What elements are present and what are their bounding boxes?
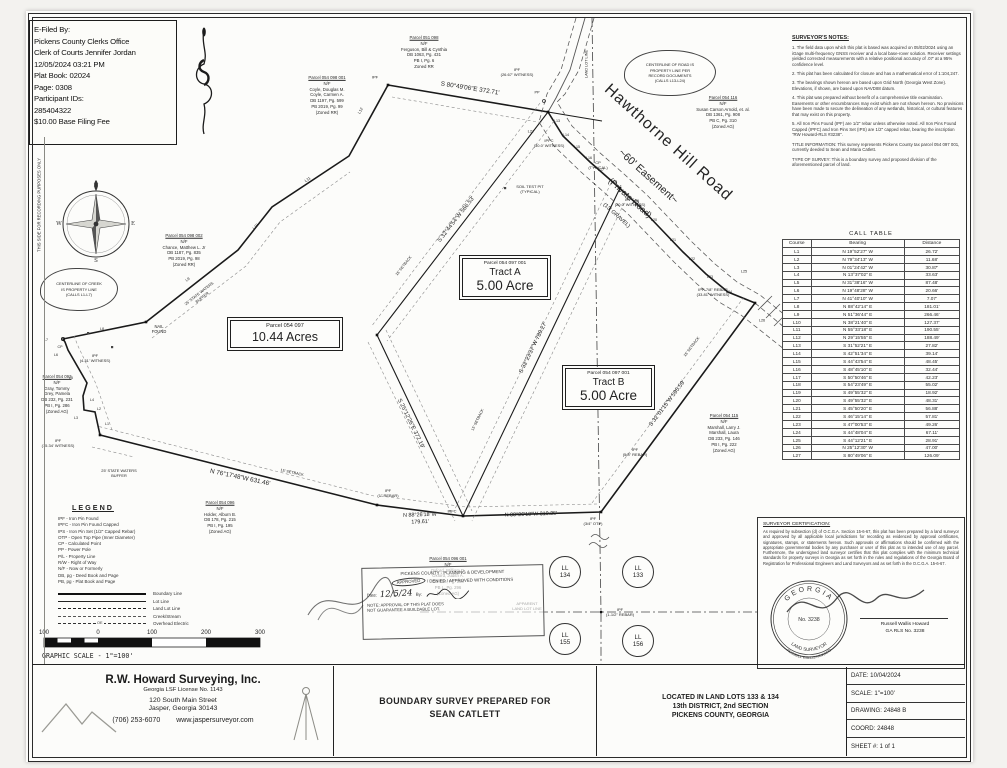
recording-margin-line	[44, 137, 45, 665]
prepared-for-block: BOUNDARY SURVEY PREPARED FOR SEAN CATLET…	[336, 666, 594, 719]
tripod-logo-icon	[286, 684, 326, 746]
location-block: LOCATED IN LAND LOTS 133 & 134 13th DIST…	[596, 666, 845, 719]
location-line-2: 13th DISTRICT, 2nd SECTION	[596, 703, 845, 710]
company-website: www.jaspersurveyor.com	[176, 717, 253, 724]
info-scale: SCALE: 1"=100'	[847, 685, 965, 703]
title-strip-divider	[32, 664, 965, 665]
plat-sheet: E-Filed By:Pickens County Clerks OfficeC…	[0, 0, 1007, 768]
location-line-1: LOCATED IN LAND LOTS 133 & 134	[596, 694, 845, 701]
drawing-info-block: DATE: 10/04/2024 SCALE: 1"=100' DRAWING:…	[846, 667, 965, 756]
sheet-border-inner	[32, 17, 967, 758]
info-date: DATE: 10/04/2024	[847, 667, 965, 685]
title-divider-1	[333, 666, 334, 756]
info-drawing: DRAWING: 24848 B	[847, 703, 965, 721]
info-sheet: SHEET #: 1 of 1	[847, 738, 965, 755]
mountain-logo-icon	[40, 692, 120, 737]
info-coord: COORD: 24848	[847, 720, 965, 738]
client-name: SEAN CATLETT	[336, 709, 594, 719]
survey-title: BOUNDARY SURVEY PREPARED FOR	[336, 696, 594, 706]
location-line-3: PICKENS COUNTY, GEORGIA	[596, 712, 845, 719]
